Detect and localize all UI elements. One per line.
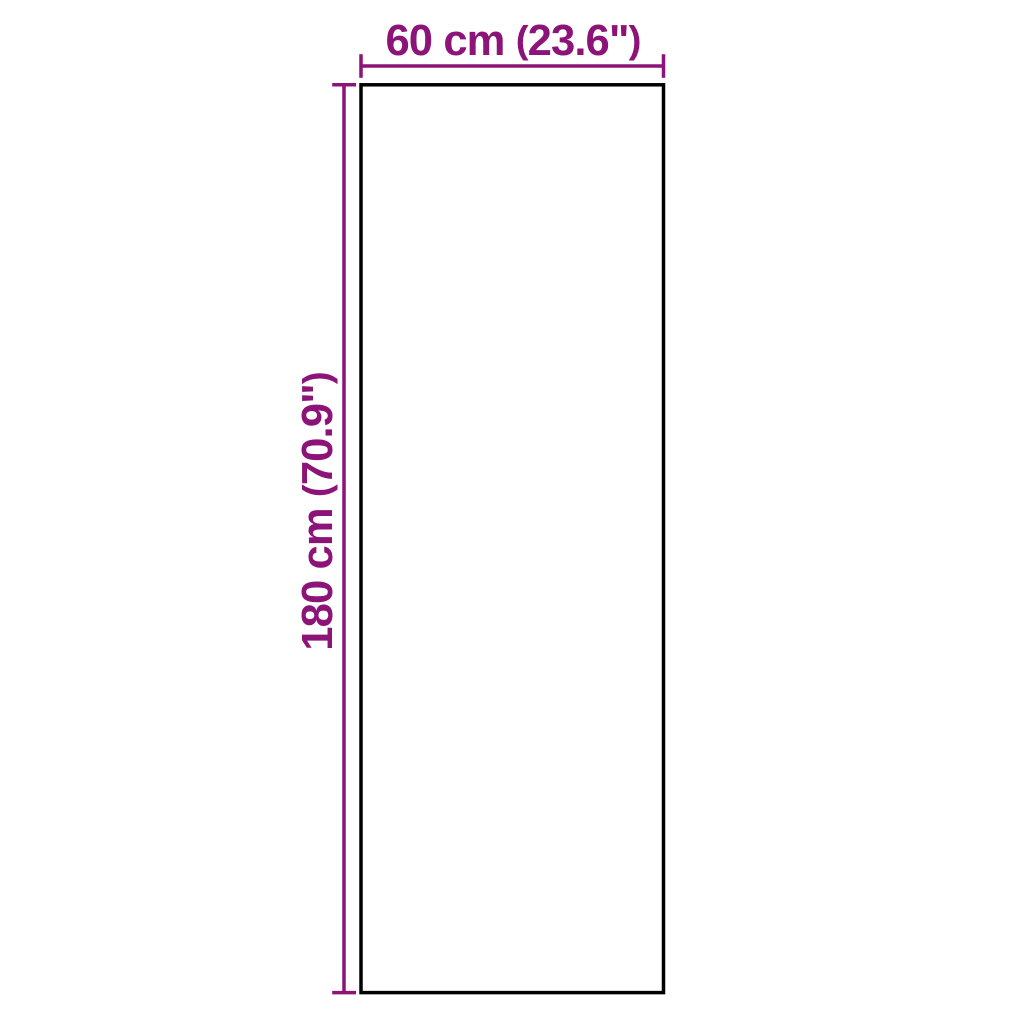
svg-text:60 cm (23.6"): 60 cm (23.6") <box>385 17 640 65</box>
svg-text:180 cm (70.9"): 180 cm (70.9") <box>294 372 342 650</box>
